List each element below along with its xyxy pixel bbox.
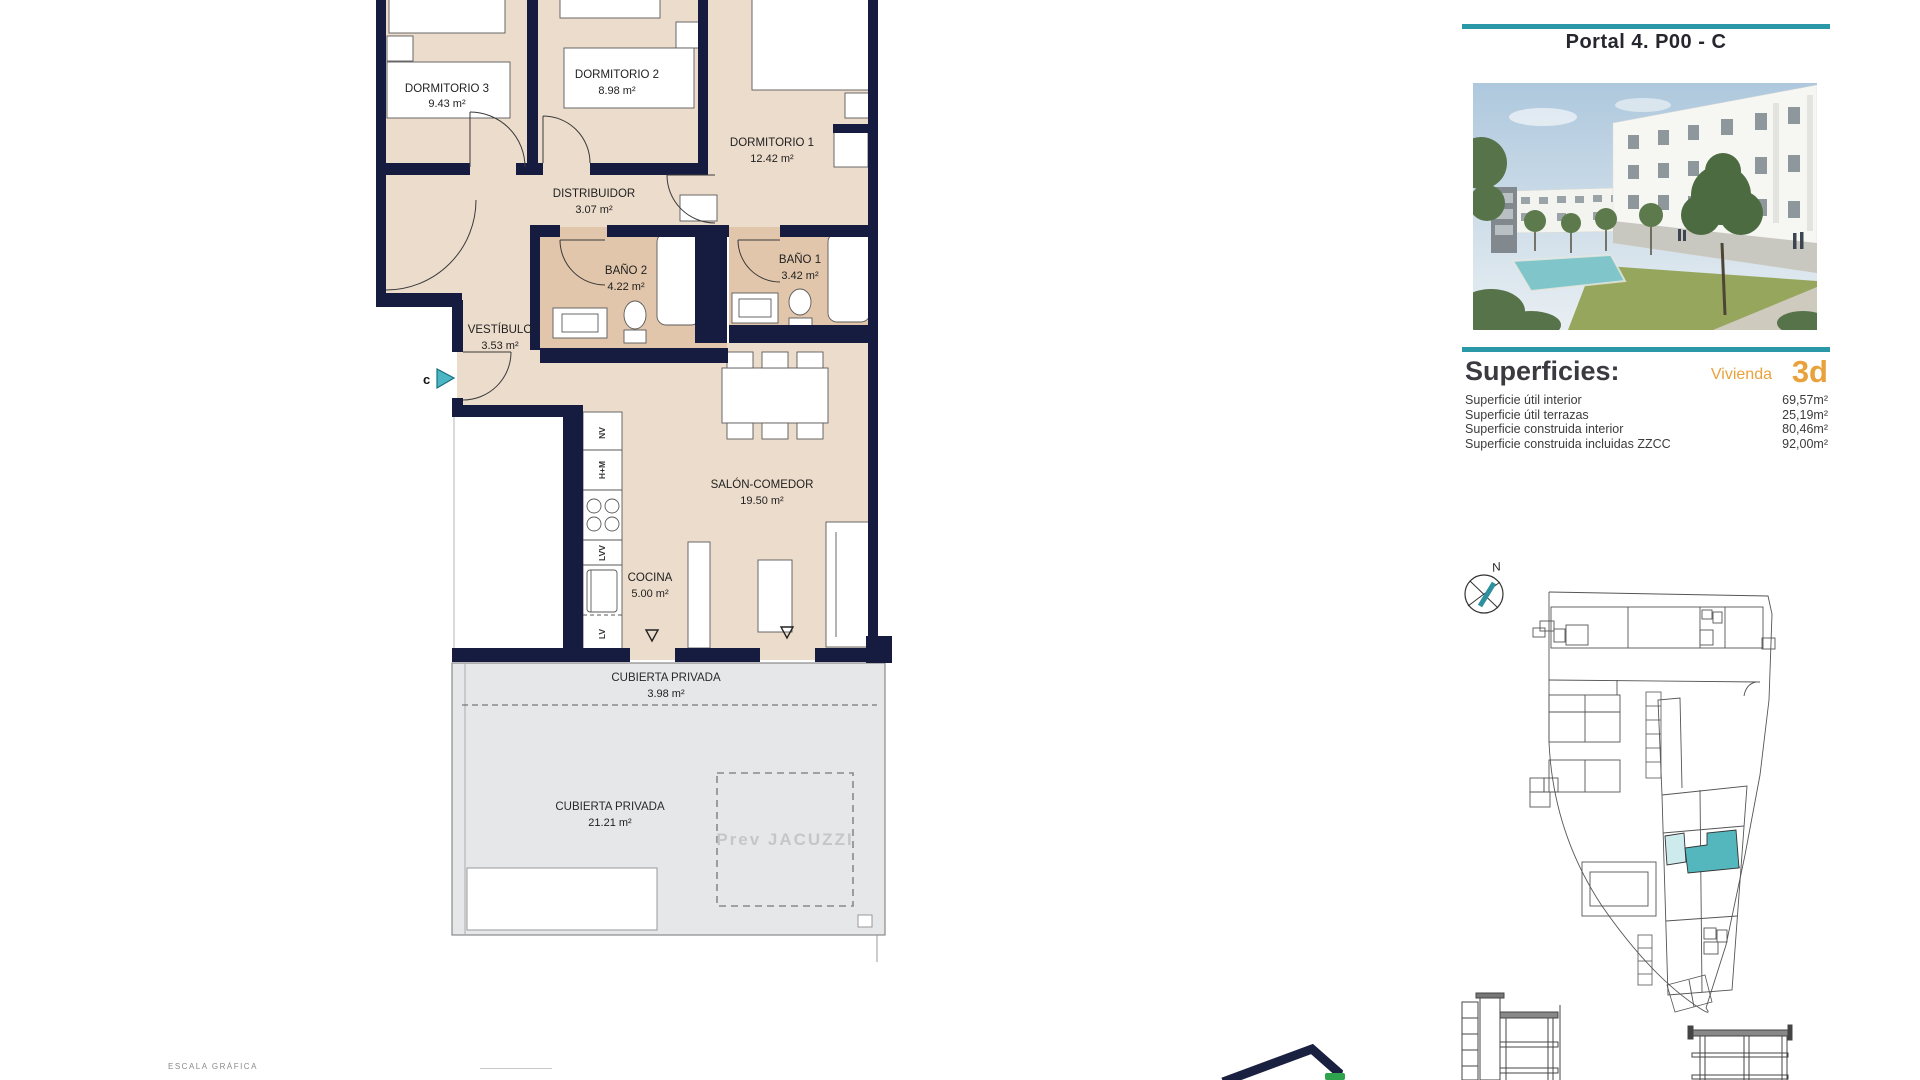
entrance-letter: c <box>423 372 430 387</box>
section-drawing-right <box>1688 1025 1792 1080</box>
superficie-value: 25,19m² <box>1782 408 1828 423</box>
superficies-row: Superficie útil terrazas 25,19m² <box>1465 408 1828 423</box>
room-area: 8.98 m² <box>598 85 636 97</box>
adjacent-plan-fragment <box>1180 1030 1380 1080</box>
plan-sheet: c DORMITORIO 3 9.43 m² DORMITORIO 2 8.98… <box>0 0 1920 1080</box>
room-label: CUBIERTA PRIVADA <box>611 672 721 684</box>
room-label: BAÑO 1 <box>779 253 821 266</box>
room-label: DORMITORIO 1 <box>730 137 814 149</box>
superficies-row: Superficie útil interior 69,57m² <box>1465 393 1828 408</box>
room-area: 5.00 m² <box>631 588 669 600</box>
room-label: DORMITORIO 2 <box>575 69 659 81</box>
room-label: DISTRIBUIDOR <box>553 188 635 200</box>
room-area: 4.22 m² <box>607 281 645 293</box>
section-drawing-left <box>1462 993 1560 1080</box>
room-label: CUBIERTA PRIVADA <box>555 801 665 813</box>
top-rule <box>1462 24 1830 29</box>
siteplan-drawing: N <box>1440 548 1840 1080</box>
superficies-title: Superficies: <box>1465 356 1620 387</box>
room-area: 19.50 m² <box>740 495 784 507</box>
superficie-label: Superficie construida interior <box>1465 422 1623 437</box>
vivienda-label: Vivienda <box>1711 366 1772 384</box>
superficies-table: Superficie útil interior 69,57m² Superfi… <box>1465 393 1828 451</box>
entrance-arrow-icon <box>437 369 454 388</box>
siteplan <box>1530 592 1775 1012</box>
room-area: 3.07 m² <box>575 204 613 216</box>
superficie-value: 69,57m² <box>1782 393 1828 408</box>
room-label: COCINA <box>628 572 673 584</box>
compass-north-label: N <box>1491 559 1503 575</box>
room-area: 21.21 m² <box>588 817 632 829</box>
floorplan-drawing: c DORMITORIO 3 9.43 m² DORMITORIO 2 8.98… <box>0 0 960 1080</box>
superficies-row: Superficie construida incluidas ZZCC 92,… <box>1465 437 1828 452</box>
kitchen-label-hm: H+M <box>597 461 607 479</box>
room-label: SALÓN-COMEDOR <box>711 478 814 491</box>
compass-icon: N <box>1465 559 1503 613</box>
superficie-label: Superficie útil terrazas <box>1465 408 1589 423</box>
room-label: VESTÍBULO <box>468 323 533 336</box>
superficie-label: Superficie útil interior <box>1465 393 1582 408</box>
room-area: 3.42 m² <box>781 270 819 282</box>
scale-bar <box>480 1068 552 1069</box>
room-area: 12.42 m² <box>750 153 794 165</box>
room-area: 3.98 m² <box>647 688 685 700</box>
superficie-label: Superficie construida incluidas ZZCC <box>1465 437 1671 452</box>
scale-label: ESCALA GRÁFICA <box>168 1062 258 1071</box>
superficies-row: Superficie construida interior 80,46m² <box>1465 422 1828 437</box>
entrance-marker: c <box>423 369 454 388</box>
kitchen-label-lv: LV <box>597 629 607 640</box>
superficies-header: Superficies: Vivienda 3d <box>1465 356 1830 392</box>
room-area: 9.43 m² <box>428 98 466 110</box>
vivienda-code: 3d <box>1792 354 1828 390</box>
superficie-value: 92,00m² <box>1782 437 1828 452</box>
page-title: Portal 4. P00 - C <box>1462 31 1830 54</box>
room-area: 3.53 m² <box>481 340 519 352</box>
room-label: BAÑO 2 <box>605 264 647 277</box>
kitchen-label-lvv: LVV <box>597 545 607 561</box>
kitchen-label-nv: NV <box>597 427 607 439</box>
jacuzzi-label: Prev JACUZZI <box>716 830 853 849</box>
adjacent-unit-highlight <box>1665 833 1686 865</box>
room-label: DORMITORIO 3 <box>405 83 489 95</box>
green-badge <box>1325 1073 1345 1080</box>
siteplan-unit-highlight <box>1665 830 1739 873</box>
current-unit-highlight <box>1685 830 1739 873</box>
mid-rule <box>1462 347 1830 352</box>
building-render-image <box>1473 83 1817 330</box>
superficie-value: 80,46m² <box>1782 422 1828 437</box>
